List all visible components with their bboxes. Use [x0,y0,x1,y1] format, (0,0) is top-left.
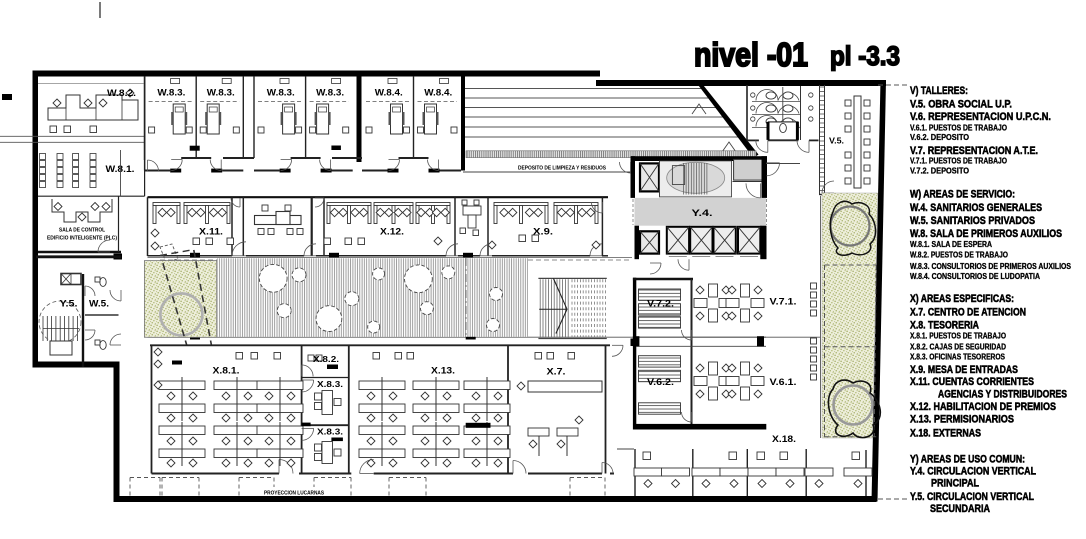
svg-text:V.7.1. PUESTOS DE TRABAJO: V.7.1. PUESTOS DE TRABAJO [910,157,1007,166]
svg-text:DEPOSITO DE LIMPIEZA Y RESIDUO: DEPOSITO DE LIMPIEZA Y RESIDUOS [518,166,606,172]
svg-text:Y.4. CIRCULACION VERTICAL: Y.4. CIRCULACION VERTICAL [910,465,1036,477]
svg-text:X.12. HABILITACION DE PREMIOS: X.12. HABILITACION DE PREMIOS [910,401,1056,413]
svg-text:X.8.1.: X.8.1. [213,366,240,376]
svg-text:X.8.3.: X.8.3. [317,427,343,437]
svg-text:W.8.1. SALA DE ESPERA: W.8.1. SALA DE ESPERA [910,240,992,249]
svg-text:nivel -01: nivel -01 [694,36,808,73]
svg-text:Y.5.: Y.5. [60,299,78,309]
svg-text:V.6.2.: V.6.2. [647,377,674,387]
svg-text:W.5. SANITARIOS PRIVADOS: W.5. SANITARIOS PRIVADOS [910,215,1035,227]
svg-text:X.11. CUENTAS CORRIENTES: X.11. CUENTAS CORRIENTES [910,376,1034,388]
svg-text:W.8.4.: W.8.4. [424,88,452,98]
svg-text:W.4. SANITARIOS GENERALES: W.4. SANITARIOS GENERALES [910,202,1042,214]
svg-text:W.8.3.: W.8.3. [267,88,295,98]
svg-text:V.6. REPRESENTACION U.P.C.N.: V.6. REPRESENTACION U.P.C.N. [910,111,1051,123]
svg-text:PROYECCION LUCARNAS: PROYECCION LUCARNAS [264,490,324,496]
svg-text:W.8.3.: W.8.3. [316,88,344,98]
svg-text:Y) AREAS DE USO COMUN:: Y) AREAS DE USO COMUN: [910,453,1025,465]
svg-text:W.8.3.: W.8.3. [157,88,185,98]
svg-text:X.8.1. PUESTOS DE TRABAJO: X.8.1. PUESTOS DE TRABAJO [910,332,1006,341]
svg-text:V.5. OBRA SOCIAL U.P.: V.5. OBRA SOCIAL U.P. [910,98,1012,110]
svg-text:V.6.1. PUESTOS DE TRABAJO: V.6.1. PUESTOS DE TRABAJO [910,124,1007,133]
svg-text:V) TALLERES:: V) TALLERES: [910,85,968,97]
svg-text:pl -3.3: pl -3.3 [830,41,900,71]
svg-text:X) AREAS ESPECIFICAS:: X) AREAS ESPECIFICAS: [910,293,1014,305]
svg-text:SALA DE CONTROL: SALA DE CONTROL [59,228,106,234]
svg-text:X.8.2.: X.8.2. [313,354,339,364]
svg-text:X.7. CENTRO DE ATENCION: X.7. CENTRO DE ATENCION [910,306,1026,318]
svg-text:AGENCIAS Y DISTRIBUIDORES: AGENCIAS Y DISTRIBUIDORES [938,389,1067,401]
svg-text:W.8.4. CONSULTORIOS DE LUDOPAT: W.8.4. CONSULTORIOS DE LUDOPATIA [910,272,1040,281]
svg-text:X.8.2. CAJAS DE SEGURIDAD: X.8.2. CAJAS DE SEGURIDAD [910,342,1006,351]
svg-text:X.13.: X.13. [431,366,455,376]
svg-text:Y.4.: Y.4. [692,208,713,219]
svg-text:W.8.2. PUESTOS DE TRABAJO: W.8.2. PUESTOS DE TRABAJO [910,250,1008,259]
svg-text:V.6.2. DEPOSITO: V.6.2. DEPOSITO [910,133,969,142]
svg-text:X.18.: X.18. [772,434,796,444]
svg-text:V.7. REPRESENTACION A.T.E.: V.7. REPRESENTACION A.T.E. [910,145,1038,157]
svg-text:X.8.3. OFICINAS TESOREROS: X.8.3. OFICINAS TESOREROS [910,353,1005,362]
svg-text:SECUNDARIA: SECUNDARIA [930,503,990,515]
svg-text:W.8.4.: W.8.4. [375,88,403,98]
svg-text:X.18. EXTERNAS: X.18. EXTERNAS [910,427,981,439]
svg-text:W.8.2.: W.8.2. [107,88,136,98]
svg-text:W.8.3. CONSULTORIOS DE PRIMERO: W.8.3. CONSULTORIOS DE PRIMEROS AUXILIOS [910,262,1071,271]
svg-text:Y.5. CIRCULACION VERTICAL: Y.5. CIRCULACION VERTICAL [910,491,1034,503]
svg-text:X.8.3.: X.8.3. [317,379,343,389]
svg-text:V.5.: V.5. [829,135,844,145]
svg-text:W) AREAS DE SERVICIO:: W) AREAS DE SERVICIO: [910,188,1015,200]
svg-text:X.11.: X.11. [199,227,223,237]
svg-text:V.7.2.: V.7.2. [647,298,674,308]
svg-text:PRINCIPAL: PRINCIPAL [931,477,979,489]
svg-text:X.12.: X.12. [380,227,404,237]
svg-text:V.6.1.: V.6.1. [770,377,797,387]
svg-text:X.13. PERMISIONARIOS: X.13. PERMISIONARIOS [910,413,1014,425]
svg-text:X.9.: X.9. [533,227,553,237]
svg-text:V.7.1.: V.7.1. [770,297,797,307]
svg-text:W.5.: W.5. [89,299,109,309]
svg-text:W.8.1.: W.8.1. [106,164,135,174]
svg-text:V.7.2. DEPOSITO: V.7.2. DEPOSITO [910,166,969,175]
svg-text:X.9. MESA DE ENTRADAS: X.9. MESA DE ENTRADAS [910,364,1018,376]
svg-text:X.8. TESORERIA: X.8. TESORERIA [910,319,979,331]
svg-text:W.8. SALA DE PRIMEROS AUXILIOS: W.8. SALA DE PRIMEROS AUXILIOS [910,228,1062,240]
svg-text:W.8.3.: W.8.3. [207,88,235,98]
svg-text:X.7.: X.7. [547,367,566,377]
